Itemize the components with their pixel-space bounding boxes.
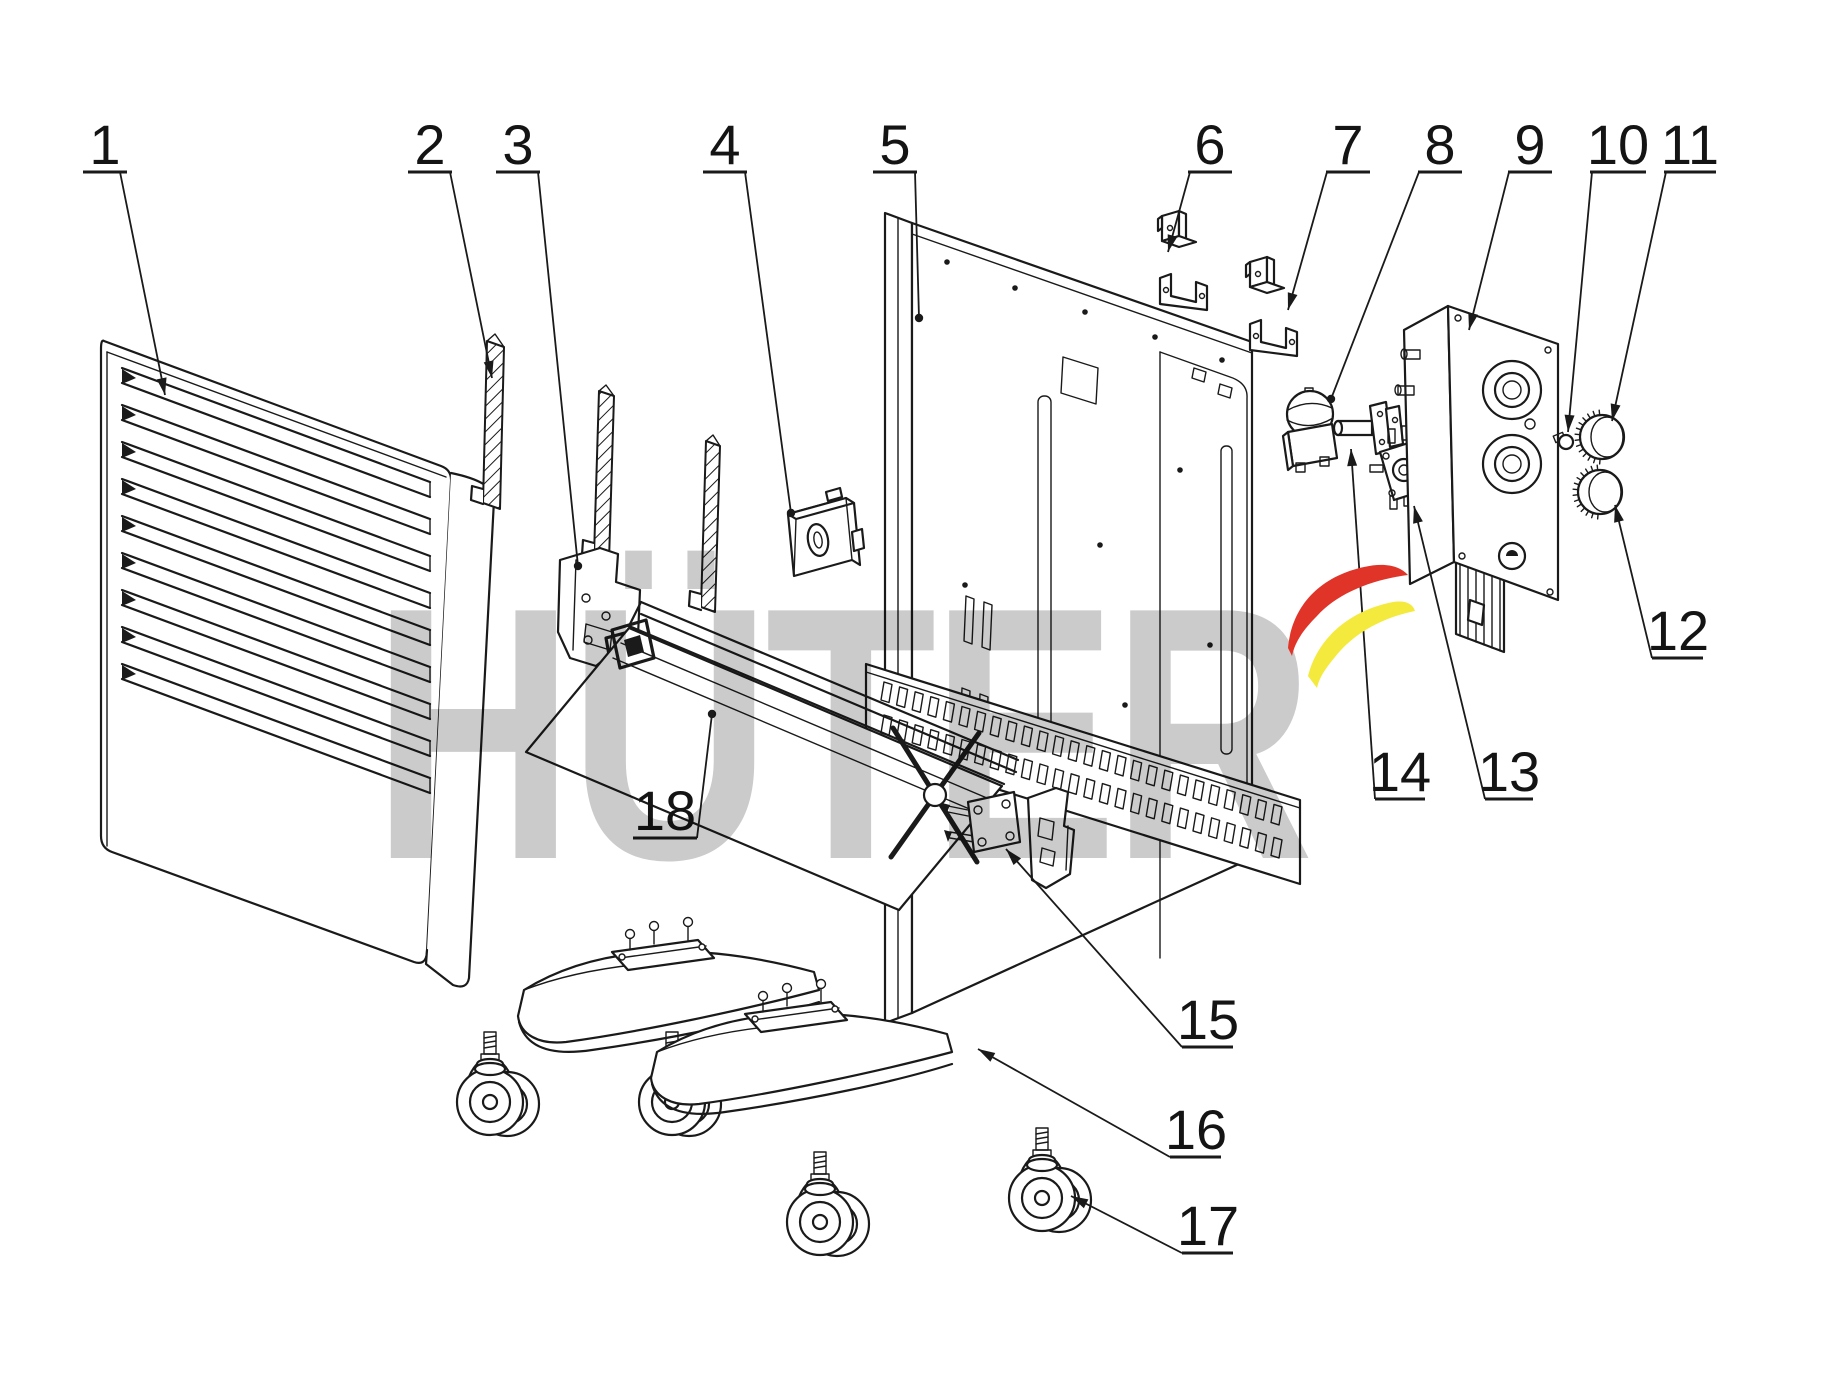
part-11-knob	[1575, 410, 1624, 464]
part-number-10: 10	[1587, 113, 1649, 176]
part-label-hinge-bracket: 3	[496, 113, 582, 570]
part-9-control-panel	[1395, 306, 1558, 652]
part-label-mounting-strip: 2	[408, 113, 494, 378]
part-number-12: 12	[1647, 599, 1709, 662]
part-number-5: 5	[879, 113, 910, 176]
part-12-knob	[1573, 465, 1622, 519]
part-label-caster-wheel: 17	[1071, 1194, 1239, 1257]
part-14-thermostat-shaft	[1334, 402, 1403, 454]
part-label-foot: 16	[978, 1049, 1227, 1161]
part-number-16: 16	[1165, 1098, 1227, 1161]
part-number-8: 8	[1424, 113, 1455, 176]
part-number-6: 6	[1194, 113, 1225, 176]
part-label-retainer-pin: 10	[1565, 113, 1650, 432]
part-number-2: 2	[414, 113, 445, 176]
part-number-9: 9	[1514, 113, 1545, 176]
exploded-parts-diagram: 123456789101112131415161718 HÜTER	[0, 0, 1821, 1381]
brand-swoosh-yellow-icon	[1308, 601, 1415, 688]
part-number-15: 15	[1177, 988, 1239, 1051]
part-label-control-panel: 9	[1468, 113, 1552, 330]
part-6-wall-brackets	[1158, 211, 1207, 310]
part-label-wall-bracket-lower: 7	[1288, 113, 1370, 310]
part-number-17: 17	[1177, 1194, 1239, 1257]
part-number-13: 13	[1478, 740, 1540, 803]
huter-watermark: HÜTER	[372, 534, 1415, 935]
part-number-11: 11	[1661, 113, 1719, 176]
part-number-3: 3	[502, 113, 533, 176]
watermark-text: HÜTER	[372, 534, 1309, 935]
part-label-knob-lower: 12	[1614, 505, 1709, 662]
part-number-1: 1	[89, 113, 120, 176]
part-number-14: 14	[1369, 740, 1431, 803]
part-number-4: 4	[709, 113, 740, 176]
part-number-7: 7	[1332, 113, 1363, 176]
